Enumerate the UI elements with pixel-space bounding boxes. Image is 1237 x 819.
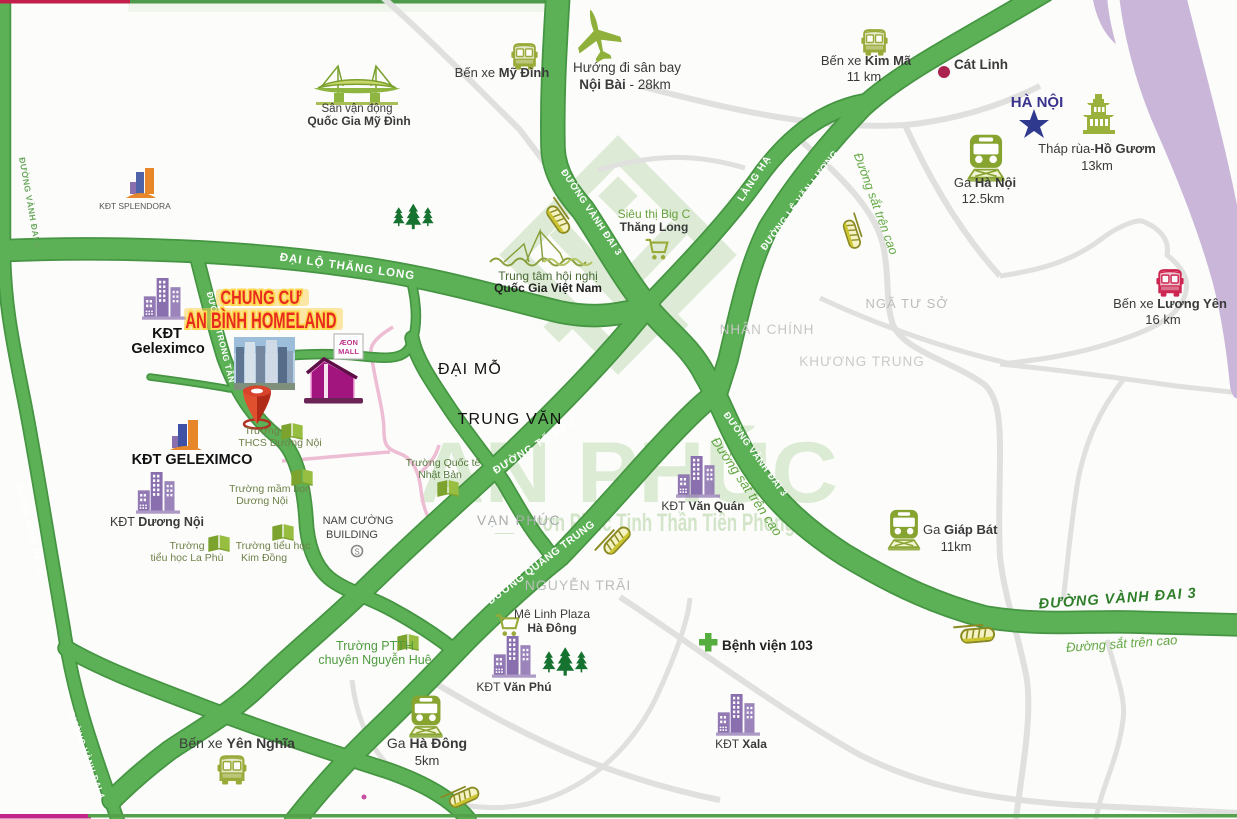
svg-text:CHUNG CƯ: CHUNG CƯ [221,288,302,309]
svg-text:Mê Linh Plaza: Mê Linh Plaza [514,607,590,621]
svg-text:Trường: Trường [169,540,204,552]
svg-text:Ga Hà Đông: Ga Hà Đông [387,735,467,751]
svg-text:Trường PTTH: Trường PTTH [336,639,414,653]
svg-text:Quốc Gia Mỹ Đình: Quốc Gia Mỹ Đình [307,114,410,128]
svg-text:Bến xe Kim Mã: Bến xe Kim Mã [821,53,912,68]
svg-text:Cát Linh: Cát Linh [954,57,1008,72]
svg-text:KĐT Xala: KĐT Xala [715,737,767,751]
svg-text:Hướng đi sân bay: Hướng đi sân bay [573,60,681,75]
svg-text:Nhật Bản: Nhật Bản [418,469,462,481]
svg-text:Bến xe Yên Nghĩa: Bến xe Yên Nghĩa [179,735,295,751]
svg-text:Bến xe Lương Yên: Bến xe Lương Yên [1113,296,1227,311]
svg-text:12.5km: 12.5km [962,191,1005,206]
svg-text:5km: 5km [415,753,440,768]
svg-text:Tháp rùa-Hồ Gươm: Tháp rùa-Hồ Gươm [1038,141,1156,156]
svg-text:Trường mầm non: Trường mầm non [229,483,311,495]
svg-text:TRUNG VĂN: TRUNG VĂN [457,409,562,428]
svg-text:KĐT SPLENDORA: KĐT SPLENDORA [99,201,171,211]
svg-text:THCS Dương Nội: THCS Dương Nội [238,437,321,449]
svg-text:KĐT Văn Quán: KĐT Văn Quán [661,499,744,513]
svg-text:KHƯƠNG TRUNG: KHƯƠNG TRUNG [799,354,925,369]
svg-text:ĐẠI MỖ: ĐẠI MỖ [438,359,502,378]
svg-text:Ga Hà Nội: Ga Hà Nội [954,175,1016,190]
svg-text:AN BÌNH HOMELAND: AN BÌNH HOMELAND [186,308,337,333]
svg-text:Ga Giáp Bát: Ga Giáp Bát [923,522,998,537]
svg-text:MALL: MALL [338,347,359,356]
svg-text:Geleximco: Geleximco [131,341,204,357]
svg-text:16 km: 16 km [1145,312,1180,327]
svg-text:BUILDING: BUILDING [326,529,378,541]
svg-text:NGÃ TƯ SỞ: NGÃ TƯ SỞ [865,296,948,311]
svg-text:KĐT: KĐT [152,326,182,342]
svg-text:Bến xe Mỹ Đình: Bến xe Mỹ Đình [455,65,550,80]
svg-text:Quốc Gia Việt Nam: Quốc Gia Việt Nam [494,281,602,295]
svg-text:KĐT Văn Phú: KĐT Văn Phú [476,680,551,694]
svg-text:Kim Đồng: Kim Đồng [241,552,287,564]
svg-text:VẠN PHÚC: VẠN PHÚC [477,512,561,528]
svg-text:Hà Đông: Hà Đông [527,621,576,635]
svg-text:KĐT GELEXIMCO: KĐT GELEXIMCO [132,452,253,468]
svg-text:KĐT Dương Nội: KĐT Dương Nội [110,515,204,529]
svg-text:HÀ NỘI: HÀ NỘI [1011,93,1064,111]
svg-text:NHÂN CHÍNH: NHÂN CHÍNH [720,322,815,337]
svg-text:Thăng Long: Thăng Long [620,220,689,234]
svg-text:ÆON: ÆON [339,338,358,347]
svg-text:Trường: Trường [244,425,279,437]
svg-text:Nội Bài - 28km: Nội Bài - 28km [579,77,671,92]
svg-text:Trường tiểu học: Trường tiểu học [236,540,311,552]
svg-text:NAM CƯỜNG: NAM CƯỜNG [323,514,394,527]
svg-text:Bệnh viện 103: Bệnh viện 103 [722,638,813,653]
svg-text:Siêu thị Big C: Siêu thị Big C [618,207,691,221]
svg-text:NGUYỄN TRÃI: NGUYỄN TRÃI [525,577,631,593]
svg-text:Dương Nội: Dương Nội [236,495,288,507]
svg-text:11km: 11km [941,539,972,554]
svg-text:11 km: 11 km [847,69,881,84]
svg-text:13km: 13km [1081,158,1113,173]
svg-text:S: S [354,548,359,557]
svg-text:Trường Quốc tế: Trường Quốc tế [406,457,481,469]
svg-text:tiểu học La Phù: tiểu học La Phù [151,552,224,564]
svg-text:chuyên Nguyễn Huệ: chuyên Nguyễn Huệ [318,652,431,667]
